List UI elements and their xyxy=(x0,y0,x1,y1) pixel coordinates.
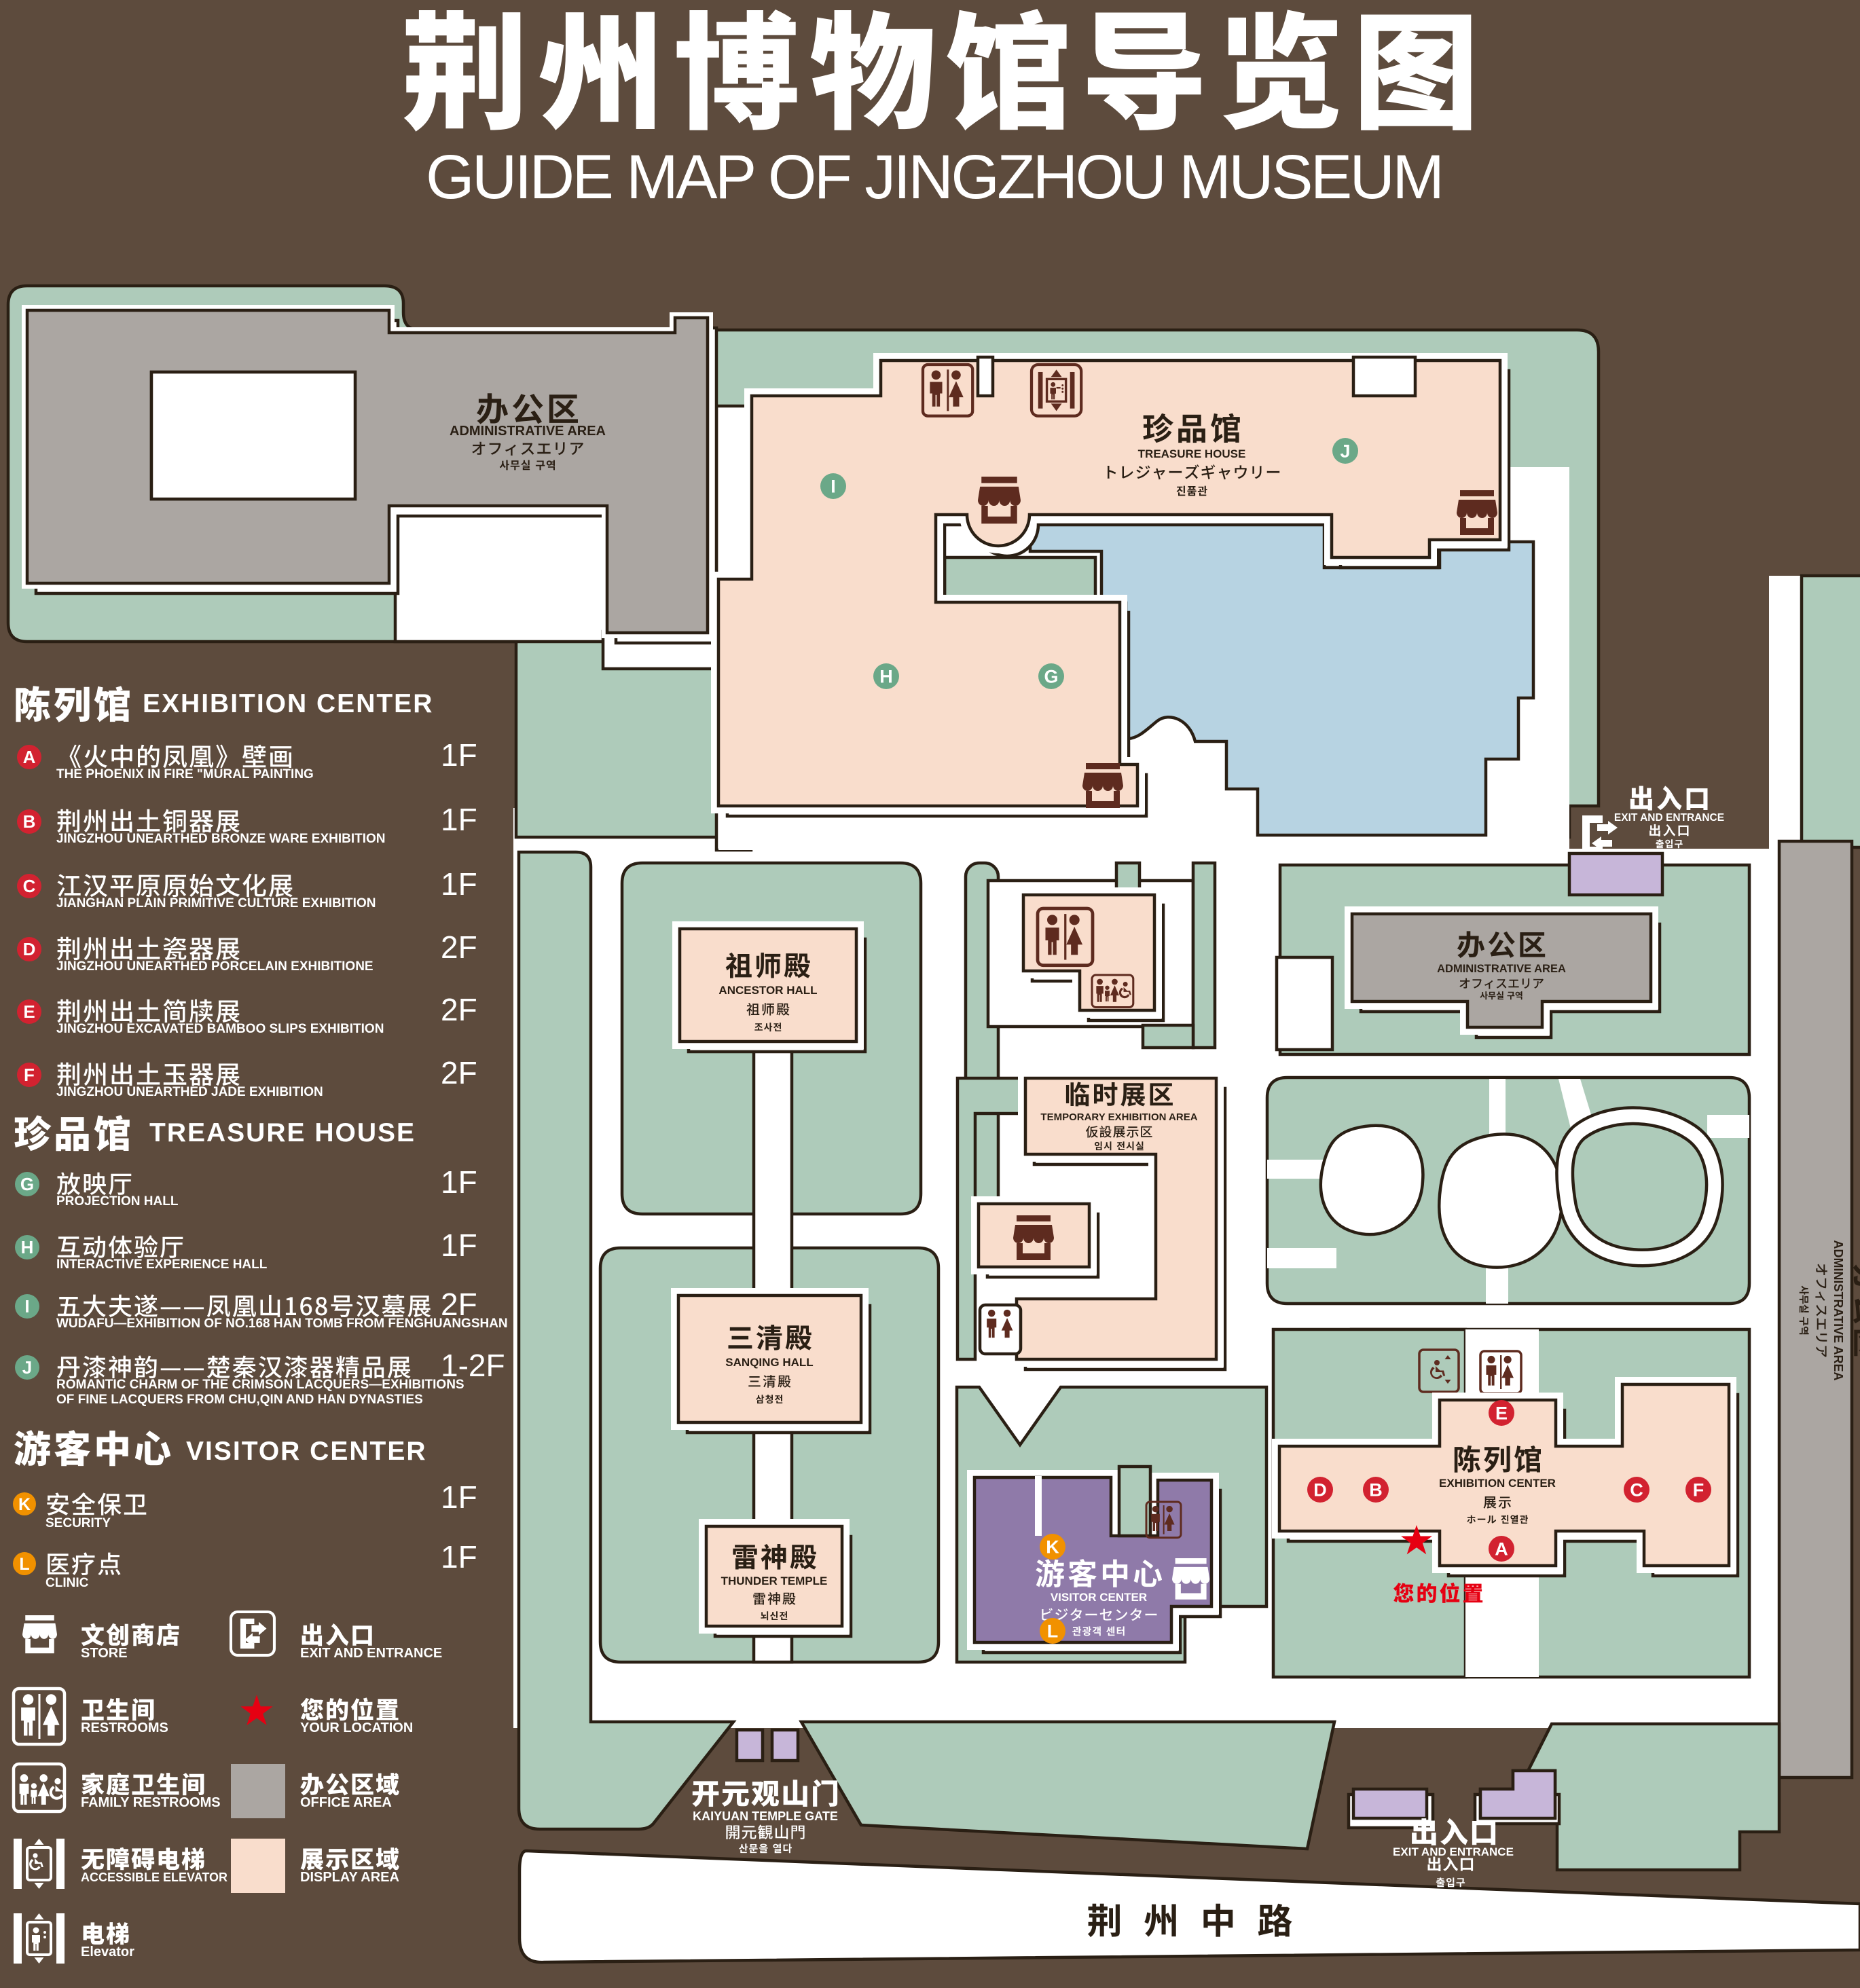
svg-text:2F: 2F xyxy=(441,1055,477,1090)
svg-text:EXIT AND ENTRANCE: EXIT AND ENTRANCE xyxy=(1393,1845,1514,1858)
svg-text:JINGZHOU UNEARTHED BRONZE WARE: JINGZHOU UNEARTHED BRONZE WARE EXHIBITIO… xyxy=(56,832,386,846)
svg-text:ADMINISTRATIVE AREA: ADMINISTRATIVE AREA xyxy=(450,424,606,439)
svg-text:B: B xyxy=(1369,1479,1383,1500)
svg-text:G: G xyxy=(20,1174,34,1194)
svg-text:TEMPORARY EXHIBITION AREA: TEMPORARY EXHIBITION AREA xyxy=(1040,1111,1197,1123)
svg-text:Elevator: Elevator xyxy=(81,1945,134,1959)
svg-text:THE PHOENIX IN FIRE "MURAL PAI: THE PHOENIX IN FIRE "MURAL PAINTING xyxy=(56,767,314,781)
svg-text:SECURITY: SECURITY xyxy=(45,1516,111,1530)
svg-text:KAIYUAN TEMPLE GATE: KAIYUAN TEMPLE GATE xyxy=(693,1809,838,1823)
svg-text:I: I xyxy=(831,476,836,496)
svg-text:ACCESSIBLE ELEVATOR: ACCESSIBLE ELEVATOR xyxy=(81,1871,227,1884)
svg-text:2F: 2F xyxy=(441,992,477,1027)
svg-text:TREASURE HOUSE: TREASURE HOUSE xyxy=(149,1118,416,1147)
svg-text:STORE: STORE xyxy=(81,1646,128,1661)
svg-text:JINGZHOU UNEARTHED PORCELAIN E: JINGZHOU UNEARTHED PORCELAIN EXHIBITIONE xyxy=(56,959,373,974)
svg-text:C: C xyxy=(23,876,36,896)
svg-text:1F: 1F xyxy=(441,1164,477,1200)
svg-text:YOUR LOCATION: YOUR LOCATION xyxy=(300,1720,413,1735)
svg-text:2F: 2F xyxy=(441,1287,477,1322)
svg-text:1F: 1F xyxy=(441,866,477,902)
svg-text:THUNDER TEMPLE: THUNDER TEMPLE xyxy=(721,1575,828,1587)
svg-text:VISITOR CENTER: VISITOR CENTER xyxy=(186,1437,427,1466)
svg-text:E: E xyxy=(23,1001,35,1022)
svg-text:INTERACTIVE EXPERIENCE HALL: INTERACTIVE EXPERIENCE HALL xyxy=(56,1257,268,1272)
svg-text:RESTROOMS: RESTROOMS xyxy=(81,1720,168,1735)
svg-text:H: H xyxy=(21,1237,34,1257)
svg-text:C: C xyxy=(1630,1479,1643,1500)
svg-text:JIANGHAN PLAIN PRIMITIVE CULTU: JIANGHAN PLAIN PRIMITIVE CULTURE EXHIBIT… xyxy=(56,896,376,910)
svg-text:ROMANTIC CHARM OF THE CRIMSON: ROMANTIC CHARM OF THE CRIMSON LACQUERS—E… xyxy=(56,1378,464,1392)
svg-text:H: H xyxy=(879,666,893,686)
svg-text:E: E xyxy=(1495,1403,1508,1423)
svg-text:1-2F: 1-2F xyxy=(441,1348,505,1383)
svg-text:L: L xyxy=(19,1555,29,1574)
svg-text:1F: 1F xyxy=(441,1479,477,1515)
svg-text:JINGZHOU EXCAVATED BAMBOO SLIP: JINGZHOU EXCAVATED BAMBOO SLIPS EXHIBITI… xyxy=(56,1022,384,1036)
svg-text:OFFICE AREA: OFFICE AREA xyxy=(300,1795,392,1810)
svg-text:SANQING HALL: SANQING HALL xyxy=(725,1356,813,1369)
svg-text:EXIT AND ENTRANCE: EXIT AND ENTRANCE xyxy=(300,1646,442,1661)
svg-text:FAMILY RESTROOMS: FAMILY RESTROOMS xyxy=(81,1795,221,1810)
svg-text:D: D xyxy=(1313,1479,1327,1500)
svg-text:G: G xyxy=(1044,666,1058,686)
svg-text:B: B xyxy=(23,811,36,832)
svg-text:ADMINISTRATIVE AREA: ADMINISTRATIVE AREA xyxy=(1437,963,1566,975)
svg-text:J: J xyxy=(1340,441,1350,461)
svg-text:J: J xyxy=(22,1357,32,1378)
svg-text:JINGZHOU UNEARTHED JADE EXHIBI: JINGZHOU UNEARTHED JADE EXHIBITION xyxy=(56,1085,323,1099)
svg-text:PROJECTION HALL: PROJECTION HALL xyxy=(56,1194,179,1209)
svg-text:DISPLAY AREA: DISPLAY AREA xyxy=(300,1870,399,1885)
svg-text:CLINIC: CLINIC xyxy=(45,1576,89,1590)
svg-text:F: F xyxy=(24,1065,35,1085)
svg-text:EXHIBITION CENTER: EXHIBITION CENTER xyxy=(143,689,433,718)
svg-text:ANCESTOR HALL: ANCESTOR HALL xyxy=(718,984,817,997)
svg-text:A: A xyxy=(1495,1539,1508,1559)
svg-text:1F: 1F xyxy=(441,802,477,837)
svg-text:K: K xyxy=(18,1495,31,1514)
svg-text:EXIT AND ENTRANCE: EXIT AND ENTRANCE xyxy=(1614,812,1724,824)
svg-text:TREASURE HOUSE: TREASURE HOUSE xyxy=(1138,447,1246,460)
svg-text:D: D xyxy=(23,939,36,959)
svg-text:GUIDE MAP OF JINGZHOU MUSEUM: GUIDE MAP OF JINGZHOU MUSEUM xyxy=(426,143,1444,212)
svg-text:2F: 2F xyxy=(441,929,477,965)
svg-text:VISITOR CENTER: VISITOR CENTER xyxy=(1051,1591,1147,1604)
svg-text:WUDAFU—EXHIBITION OF NO.168 HA: WUDAFU—EXHIBITION OF NO.168 HAN TOMB FRO… xyxy=(56,1317,508,1331)
svg-text:1F: 1F xyxy=(441,737,477,773)
svg-text:EXHIBITION CENTER: EXHIBITION CENTER xyxy=(1439,1477,1556,1490)
svg-text:F: F xyxy=(1693,1479,1704,1500)
svg-text:K: K xyxy=(1046,1536,1059,1557)
svg-text:1F: 1F xyxy=(441,1228,477,1263)
svg-text:1F: 1F xyxy=(441,1539,477,1575)
svg-text:I: I xyxy=(24,1296,29,1317)
svg-text:ADMINISTRATIVE AREA: ADMINISTRATIVE AREA xyxy=(1831,1240,1845,1381)
svg-text:A: A xyxy=(23,747,36,767)
svg-text:L: L xyxy=(1047,1621,1059,1641)
svg-text:OF FINE LACQUERS FROM CHU,QIN: OF FINE LACQUERS FROM CHU,QIN AND HAN DY… xyxy=(56,1393,423,1407)
